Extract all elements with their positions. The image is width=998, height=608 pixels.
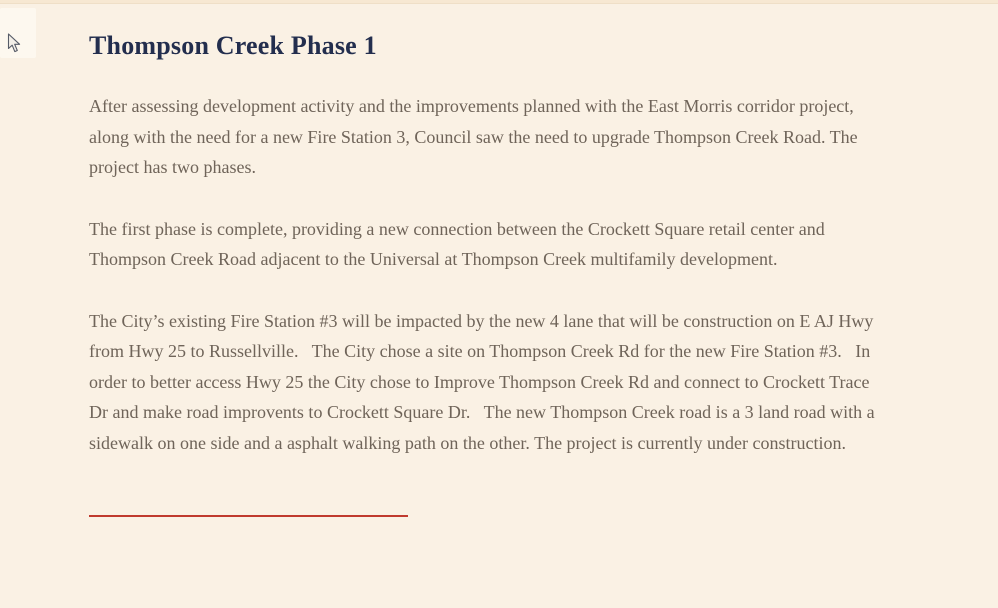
section-divider	[89, 515, 408, 517]
paragraph-intro: After assessing development activity and…	[89, 91, 889, 183]
paragraph-fire-station: The City’s existing Fire Station #3 will…	[89, 306, 889, 459]
page-title: Thompson Creek Phase 1	[89, 27, 889, 65]
mouse-cursor-icon	[7, 33, 22, 54]
article: Thompson Creek Phase 1 After assessing d…	[89, 27, 889, 517]
paragraph-phase-one: The first phase is complete, providing a…	[89, 214, 889, 275]
top-border-band	[0, 0, 998, 4]
